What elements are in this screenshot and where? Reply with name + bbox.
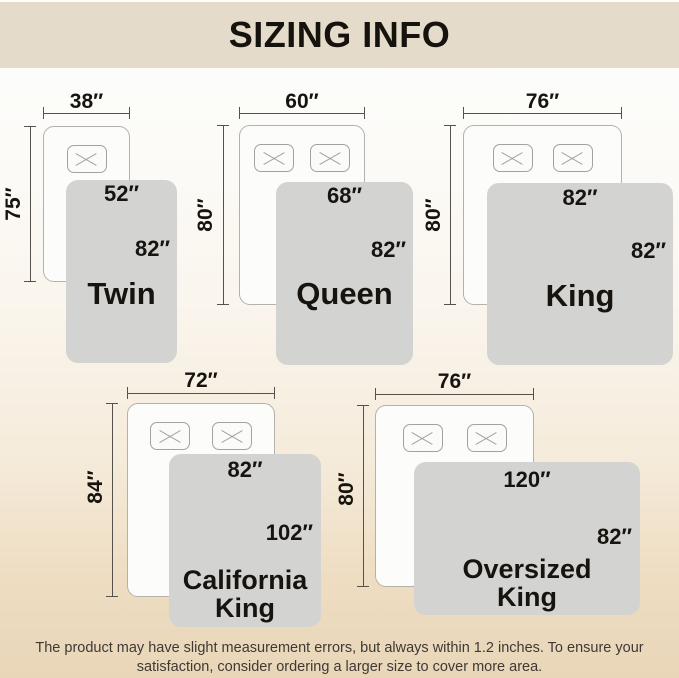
size-name-label: California King [175,566,315,623]
pillow-row [128,422,274,450]
blanket-queen: 68″ 82″ Queen [276,182,413,365]
length-dimension-line [217,125,229,305]
blanket-width-label: 52″ [66,182,177,206]
size-name-label: Queen [296,278,392,310]
pillow-icon [403,424,443,452]
disclaimer-text: The product may have slight measurement … [20,639,660,677]
pillow-icon [553,144,593,172]
length-dimension-line [24,126,36,282]
size-name-label: King [546,280,615,312]
width-dimension-line [43,107,130,119]
blanket-width-label: 82″ [169,458,321,482]
bed-length-label: 80″ [194,198,218,231]
pillow-icon [212,422,252,450]
blanket-width-label: 82″ [487,186,673,210]
blanket-king: 82″ 82″ King [487,183,673,365]
sizing-info-infographic: SIZING INFO 38″ 75″ 52″ 82″ Twin 60″ 80″ [0,0,679,678]
page-title: SIZING INFO [229,14,451,56]
pillow-icon [310,144,350,172]
blanket-width-label: 120″ [414,468,640,492]
pillow-icon [150,422,190,450]
blanket-length-label: 82″ [135,237,170,261]
pillow-icon [254,144,294,172]
bed-length-label: 75″ [2,187,26,220]
width-dimension-line [463,107,622,119]
bed-length-label: 84″ [84,470,108,503]
pillow-row [240,144,364,172]
footer-disclaimer: The product may have slight measurement … [0,639,679,677]
size-name-label: Twin [87,278,155,310]
pillow-icon [467,424,507,452]
blanket-width-label: 68″ [276,184,413,208]
length-dimension-line [106,403,118,597]
size-name-label: Oversized King [442,555,612,612]
blanket-length-label: 82″ [631,239,666,263]
blanket-twin: 52″ 82″ Twin [66,180,177,363]
pillow-row [44,145,129,173]
blanket-california-king: 82″ 102″ California King [169,454,321,627]
pillow-icon [67,145,107,173]
bed-length-label: 80″ [422,198,446,231]
pillow-row [376,424,533,452]
blanket-length-label: 82″ [597,525,632,549]
bed-length-label: 80″ [335,472,359,505]
width-dimension-line [239,107,365,119]
blanket-oversized-king: 120″ 82″ Oversized King [414,462,640,615]
length-dimension-line [444,125,456,305]
blanket-length-label: 102″ [266,521,313,545]
width-dimension-line [127,387,275,399]
pillow-icon [493,144,533,172]
length-dimension-line [357,405,369,587]
width-dimension-line [375,388,534,400]
header-band: SIZING INFO [0,2,679,68]
pillow-row [464,144,621,172]
blanket-length-label: 82″ [371,238,406,262]
